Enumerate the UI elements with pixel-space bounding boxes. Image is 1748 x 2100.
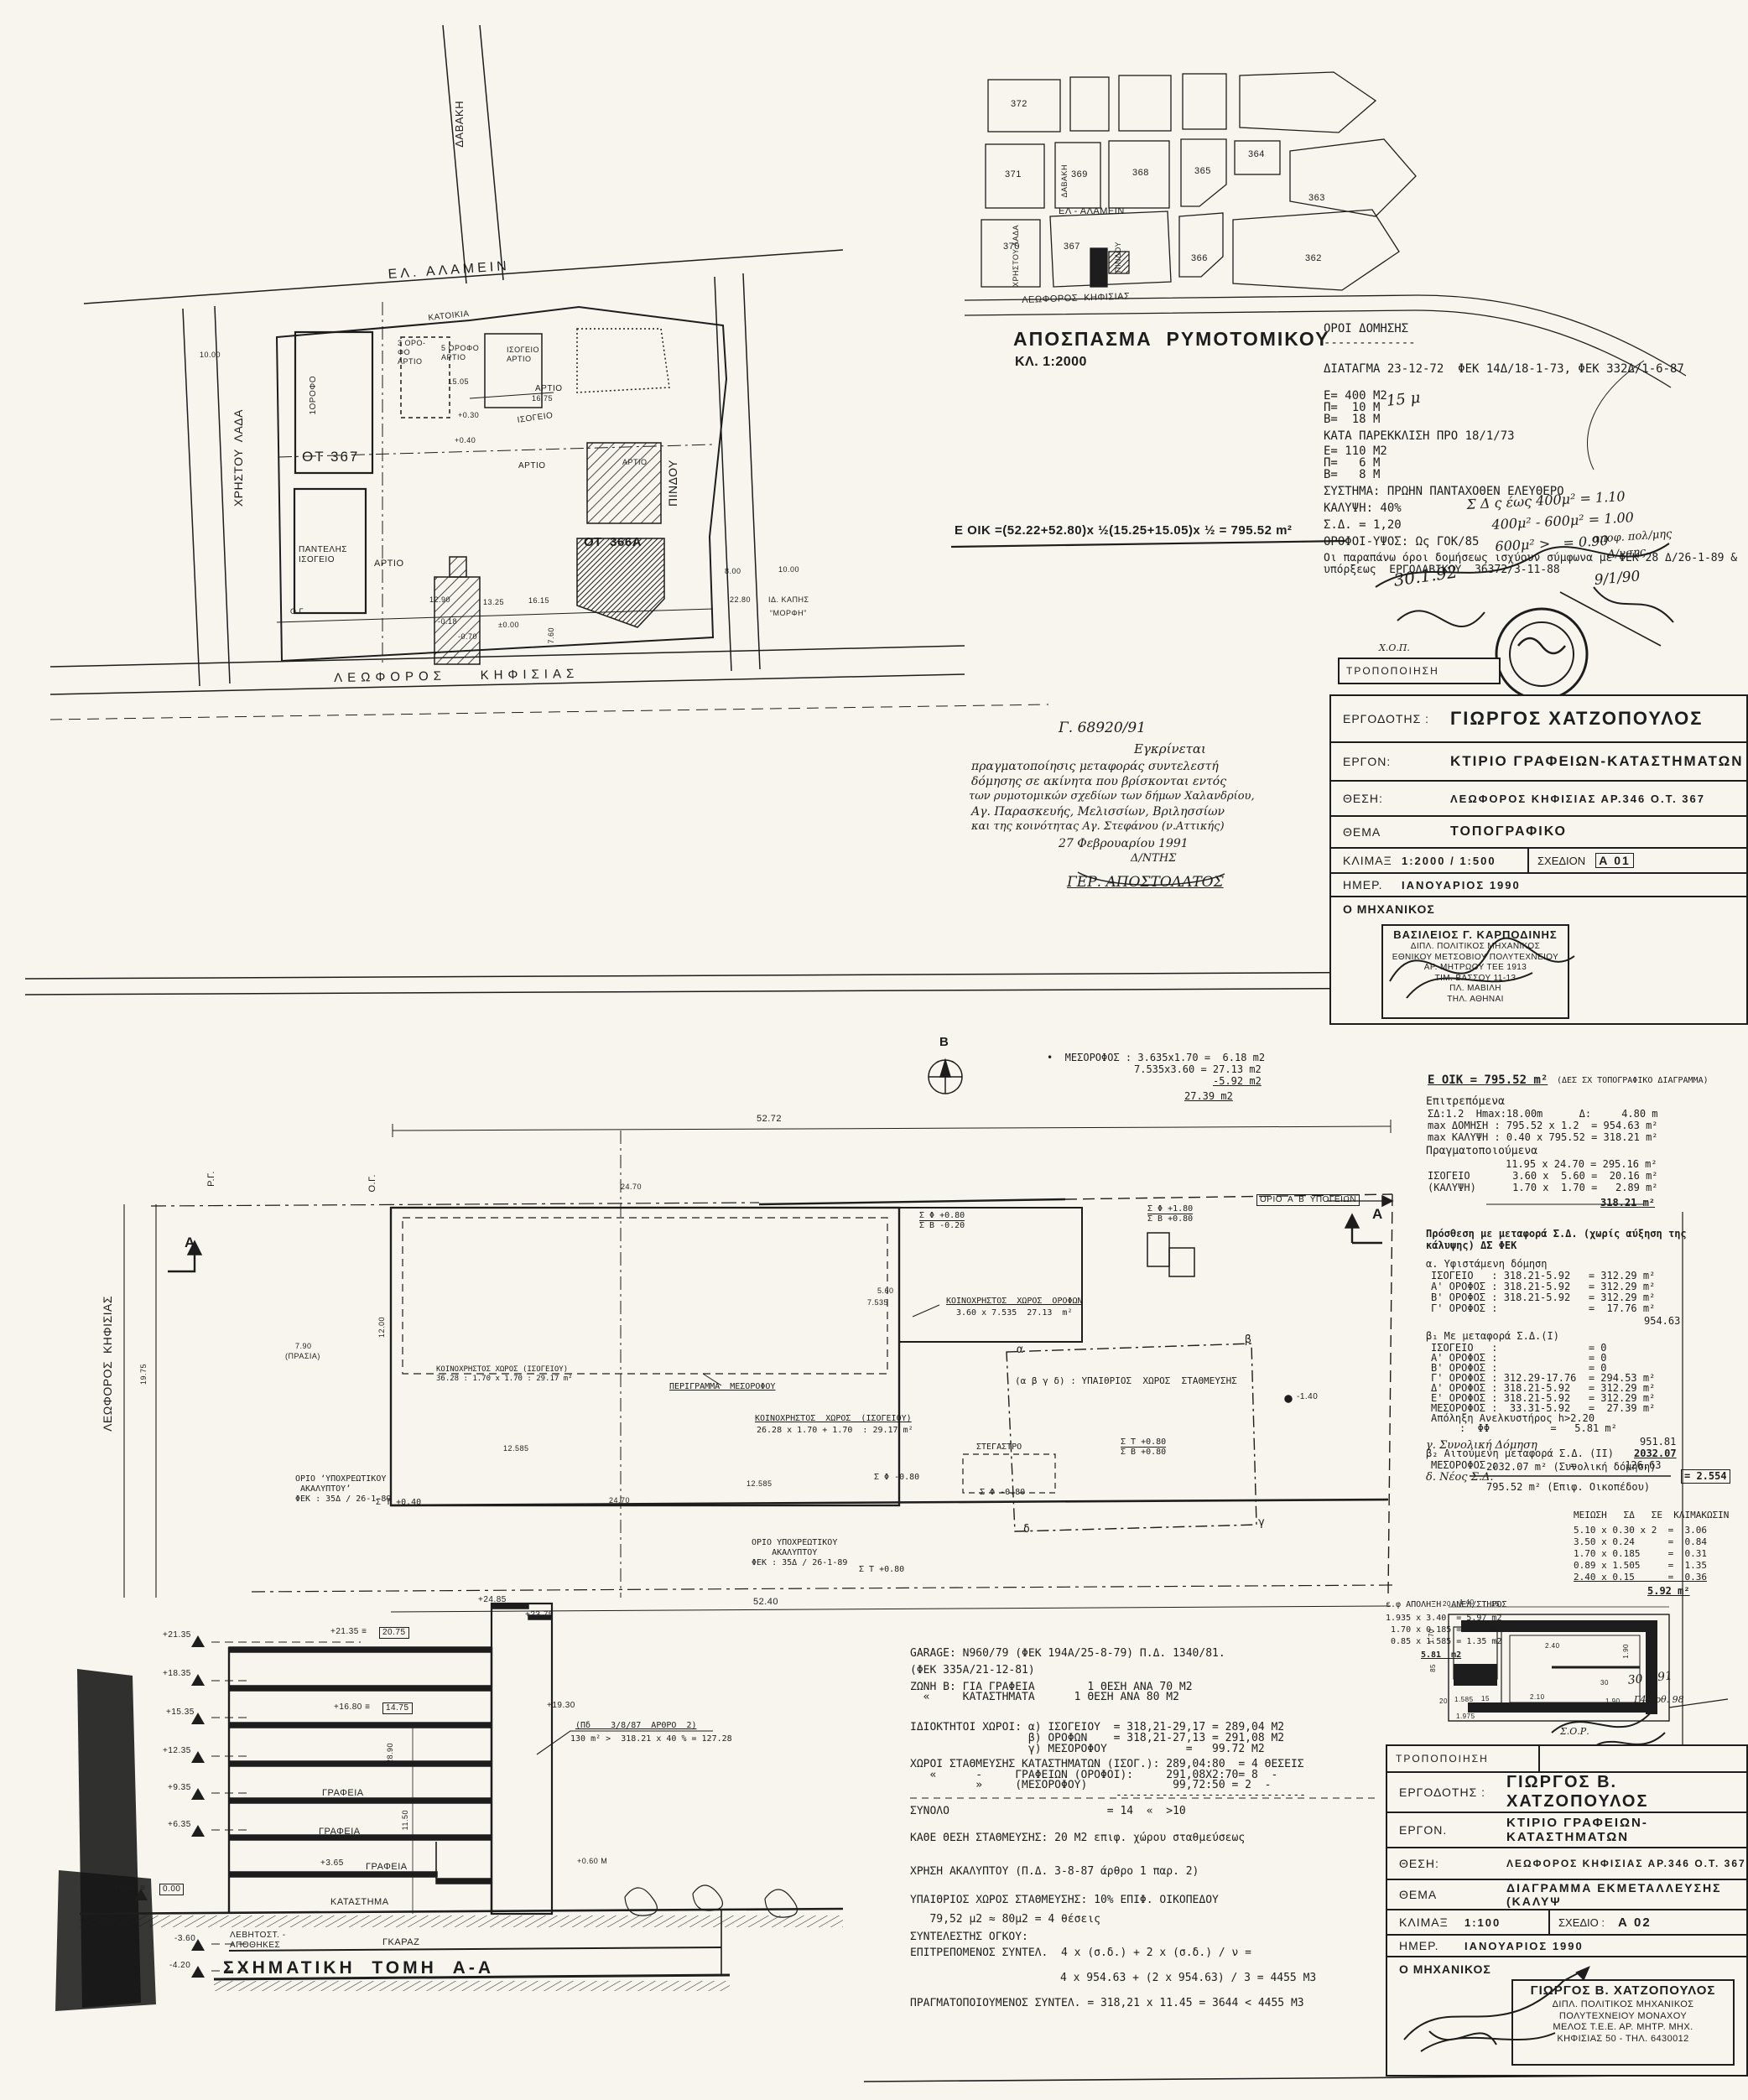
- dim: 15: [1491, 1600, 1500, 1609]
- dim: 24.70: [621, 1183, 642, 1192]
- site-calc: max ΚΑΛΥΨΗ : 0.40 x 795.52 = 318.21 m²: [1428, 1131, 1658, 1144]
- approval-note: Εγκρίνεται: [1134, 741, 1206, 756]
- site-calc: 2032.07: [1634, 1448, 1677, 1460]
- site-calc: = 2.554: [1681, 1469, 1730, 1484]
- level: +19.30: [547, 1701, 575, 1711]
- hand-note: 400μ² - 600μ² = 1.00: [1491, 509, 1634, 533]
- dim: 10.00: [778, 565, 799, 574]
- shaft-calc: 5.81 m2: [1421, 1650, 1461, 1661]
- plan-note: ΟΡΙΟ ΥΠΟΧΡΕΩΤΙΚΟΥ ΑΚΑΛΥΠΤΟΥ ΦΕΚ : 35Δ / …: [752, 1538, 847, 1569]
- section-title: ΣΧΗΜΑΤΙΚΗ ΤΟΜΗ Α-Α: [223, 1957, 494, 1979]
- hand-note: Γ4 αρθ. 98: [1634, 1694, 1684, 1705]
- modification-cell: ΤΡΟΠΟΠΟΙΗΣΗ: [1338, 658, 1501, 684]
- level-label: Σ Τ +0.40: [376, 1498, 421, 1508]
- engineer-signature: [1396, 1964, 1614, 2065]
- street-label: ΧΡΗΣΤΟΥ ΛΑΔΑ: [232, 409, 246, 507]
- level: +23.75: [525, 1610, 554, 1620]
- level: 20.75: [379, 1627, 409, 1639]
- plan-note: “ΜΟΡΦΗ”: [770, 609, 807, 618]
- reduction-table: 0.89 x 1.505 = 1.35: [1574, 1560, 1707, 1571]
- dim: 30: [1600, 1679, 1609, 1687]
- keymap-block: 369: [1071, 169, 1088, 180]
- garage-note: ΧΡΗΣΗ ΑΚΑΛΥΠΤΟΥ (Π.Δ. 3-8-87 άρθρο 1 παρ…: [910, 1865, 1199, 1879]
- level: +24.85: [478, 1595, 507, 1605]
- building-terms-line: Σ.Δ. = 1,20: [1324, 518, 1402, 533]
- site-calc: (ΔΕΣ ΣΧ ΤΟΠΟΓΡΑΦΙΚΟ ΔΙΑΓΡΑΜΜΑ): [1557, 1076, 1709, 1086]
- site-calc: δ. Νέος Σ.Δ.: [1426, 1471, 1494, 1484]
- site-calc: 795.52 m² (Επιφ. Οικοπέδου): [1486, 1481, 1650, 1494]
- keymap-block: 372: [1011, 99, 1027, 110]
- dim: 7.535: [867, 1298, 888, 1307]
- dim: -0.18: [438, 617, 457, 626]
- dim: 16.15: [528, 596, 549, 606]
- client-label: ΕΡΓΟΔΟΤΗΣ :: [1387, 1786, 1506, 1799]
- dim: -1.40: [1297, 1392, 1318, 1402]
- corner-letter: γ: [1258, 1516, 1265, 1530]
- subject-value: ΔΙΑΓΡΑΜΜΑ ΕΚΜΕΤΑΛΛΕΥΣΗΣ (ΚΑΛΥΨ: [1506, 1881, 1746, 1908]
- dim: (ΠΡΑΣΙΑ): [285, 1352, 320, 1361]
- garage-note: ΣΥΝΟΛΟ = 14 « >10: [910, 1805, 1186, 1818]
- dim: 2.10: [1530, 1693, 1545, 1702]
- dim: +0.40: [455, 436, 476, 445]
- keymap-block: 362: [1305, 253, 1322, 264]
- section-note: 130 m² > 318.21 x 40 % = 127.28: [570, 1734, 732, 1744]
- dim: 1.40: [1459, 1598, 1475, 1607]
- dim: 22.80: [730, 595, 751, 605]
- engineer-signature: [1356, 906, 1608, 1023]
- hand-note: αποφ. πολ/μης: [1592, 528, 1673, 546]
- approval-note: Δ/ΝΤΗΣ: [1131, 852, 1176, 865]
- building-terms-line: ΚΑΤΑ ΠΑΡΕΚΚΛΙΣΗ ΠΡΟ 18/1/73: [1324, 429, 1515, 444]
- room-label: ΓΡΑΦΕΙΑ: [322, 1788, 364, 1799]
- hand-note: 30 1.91: [1627, 1669, 1673, 1688]
- level: +3.65: [320, 1858, 344, 1869]
- dim: ±0.00: [498, 621, 519, 630]
- dim: 20: [1443, 1600, 1451, 1609]
- hand-note: Χ.Ο.Π.: [1379, 642, 1410, 653]
- plan-note: ΙΣΟΓΕΙΟ: [517, 411, 554, 426]
- level: +21.35: [163, 1630, 191, 1640]
- dim: +0.30: [458, 411, 479, 420]
- approval-note: 27 Φεβρουαρίου 1991: [1059, 837, 1189, 851]
- dim: 7.60: [547, 627, 556, 644]
- dim: 1.90: [1622, 1644, 1631, 1659]
- block-label: ΟΤ 367: [302, 449, 359, 466]
- date-label: ΗΜΕΡ.: [1331, 878, 1402, 891]
- keymap-block: 370: [1003, 242, 1020, 252]
- drawing-no-label: ΣΧΕΔΙΟΝ: [1537, 855, 1585, 867]
- hand-note: Σ.Ο.Ρ.: [1560, 1726, 1589, 1737]
- dim: 24.70: [609, 1496, 630, 1505]
- subject-label: ΘΕΜΑ: [1331, 825, 1450, 839]
- garage-note: « ΚΑΤΑΣΤΗΜΑΤΑ 1 ΘΕΣΗ ΑΝΑ 80 Μ2: [910, 1691, 1179, 1704]
- shaft-calc: 1.70 x 0.185 = 0.31 m2: [1386, 1625, 1501, 1635]
- keymap-street: ΧΡΗΣΤΟΥ ΛΑΔΑ: [1012, 225, 1021, 287]
- level: 0.00: [159, 1884, 184, 1895]
- dim: 1.70: [1428, 1629, 1436, 1644]
- room-label: ΓΡΑΦΕΙΑ: [319, 1827, 361, 1837]
- site-calc: 2032.07 m² (Συνολική δόμηση): [1486, 1461, 1656, 1474]
- approval-signature: ΓΕΡ. ΑΠΟΣΤΟΛΑΤΟΣ: [1067, 874, 1224, 891]
- level-label: Σ Φ -0.80: [980, 1488, 1025, 1498]
- reduction-table: 5.10 x 0.30 x 2 = 3.06: [1574, 1525, 1707, 1536]
- corner-letter: δ: [1023, 1523, 1030, 1536]
- dim: 15.05: [448, 377, 469, 387]
- plan-note: ΑΡΤΙΟ: [622, 458, 648, 467]
- hand-note: 15 μ: [1386, 389, 1421, 411]
- plan-note: ΠΕΡΙΓΡΑΜΜΑ ΜΕΣΟΡΟΦΟΥ: [669, 1382, 775, 1392]
- client-label: ΕΡΓΟΔΟΤΗΣ :: [1331, 712, 1450, 725]
- dim: 12.90: [429, 595, 450, 605]
- block-label: ΟΤ 366Α: [584, 535, 642, 550]
- dim: 12.585: [747, 1479, 773, 1489]
- drawing-no: Α 02: [1618, 1915, 1652, 1930]
- plan-note: ΑΡΤΙΟ: [374, 559, 404, 569]
- subject-label: ΘΕΜΑ: [1387, 1888, 1506, 1901]
- plan-note: ΙΔ. ΚΑΠΗΣ: [768, 595, 809, 605]
- date-value: ΙΑΝΟΥΑΡΙΟΣ 1990: [1402, 879, 1521, 891]
- dim: 13.25: [483, 598, 504, 607]
- date-value: ΙΑΝΟΥΑΡΙΟΣ 1990: [1464, 1940, 1584, 1952]
- plan-note: ΣΤΕΓΑΣΤΡΟ: [976, 1442, 1022, 1453]
- shaft-calc: 1.935 x 3.40 = 5.97 m2: [1386, 1614, 1501, 1624]
- plan-note: ΟΡΙΟ Α Β ΥΠΟΓΕΙΩΝ: [1256, 1194, 1360, 1206]
- dim: 85: [1429, 1664, 1438, 1672]
- plan-note: ΚΟΙΝΟΧΡΗΣΤΟΣ ΧΩΡΟΣ (ΙΣΟΓΕΙΟΥ): [755, 1414, 912, 1424]
- scanned-drawing-page: ΕΛ - ΑΛΑΜΕΙΝΛΕΩΦΟΡΟΣ ΚΗΦΙΣΙΑΣΧΡΗΣΤΟΥ ΛΑΔ…: [0, 0, 1748, 2100]
- plan-note: 3 ΟΡΟ- ΦΟ ΑΡΤΙΟ: [398, 339, 426, 366]
- approval-note: Γ. 68920/91: [1059, 720, 1146, 737]
- level: +12.35: [163, 1746, 191, 1756]
- plan-note: 26.28 x 1.70 + 1.70 : 29.17 m²: [757, 1426, 913, 1436]
- level-label: Σ Φ +0.80 Σ Β -0.20: [919, 1211, 965, 1231]
- garage-note: 4 x 954.63 + (2 x 954.63) / 3 = 4455 Μ3: [1060, 1972, 1316, 1985]
- hand-note: Δ/νσης: [1607, 546, 1647, 562]
- approval-note: των ρυμοτομικών σχεδίων των δήμων Χαλανδ…: [969, 790, 1255, 803]
- mezzanine-calc: • ΜΕΣΟΡΟΦΟΣ : 3.635x1.70 = 6.18 m2: [1047, 1052, 1265, 1064]
- room-label: ΓΚΑΡΑΖ: [382, 1937, 419, 1948]
- street-label: ΕΛ. ΑΛΑΜΕΙΝ: [388, 258, 510, 283]
- section-marker: Α: [1372, 1206, 1383, 1224]
- location-value: ΛΕΩΦΟΡΟΣ ΚΗΦΙΣΙΑΣ ΑΡ.346 Ο.Τ. 367: [1450, 793, 1705, 805]
- street-label: ΛΕΩΦΟΡΟΣ ΚΗΦΙΣΙΑΣ: [101, 1296, 115, 1432]
- project-value: ΚΤΙΡΙΟ ΓΡΑΦΕΙΩΝ-ΚΑΤΑΣΤΗΜΑΤΩΝ: [1450, 753, 1744, 770]
- site-calc: ΙΣΟΓΕΙΟ 3.60 x 5.60 = 20.16 m²: [1428, 1170, 1658, 1183]
- level: +0.80 ≡: [114, 1884, 145, 1894]
- garage-note: ΕΠΙΤΡΕΠΟΜΕΝΟΣ ΣΥΝΤΕΛ. 4 x (σ.δ.) + 2 x (…: [910, 1947, 1251, 1960]
- approval-note: δόμησης σε ακίνητα που βρίσκονται εντός: [971, 775, 1226, 789]
- reduction-table: 5.92 m²: [1647, 1585, 1690, 1598]
- building-terms-title: ΟΡΟΙ ΔΟΜΗΣΗΣ -------------: [1324, 322, 1416, 351]
- street-label: ΛΕΩΦΟΡΟΣ ΚΗΦΙΣΙΑΣ: [334, 667, 579, 686]
- garage-note: GARAGE: Ν960/79 (ΦΕΚ 194Α/25-8-79) Π.Δ. …: [910, 1647, 1225, 1661]
- level-label: Σ Φ +1.80 Σ Β +0.80: [1147, 1204, 1193, 1224]
- scale-label: ΚΛΙΜΑΞ: [1387, 1915, 1464, 1929]
- building-terms-line: Β= 18 Μ: [1324, 413, 1380, 427]
- room-label: ΛΕΒΗΤΟΣΤ. - ΑΠΟΘΗΚΕΣ: [230, 1931, 286, 1951]
- keymap-block: 371: [1005, 169, 1022, 180]
- north-label: Β: [939, 1035, 949, 1050]
- level: +0.60 Μ: [577, 1857, 607, 1866]
- plan-note: Ο.Γ.: [290, 607, 305, 616]
- site-calc: Ε ΟΙΚ = 795.52 m²: [1428, 1073, 1548, 1088]
- mezzanine-calc: 27.39 m2: [1184, 1090, 1233, 1103]
- plan-note: 1ΟΡΟΦΟ: [309, 376, 319, 415]
- section-note: (Πδ 3/8/87 ΑΡΘΡΟ 2): [575, 1721, 697, 1731]
- titleblock-sheet2: ΤΡΟΠΟΠΟΙΗΣΗ ΕΡΓΟΔΟΤΗΣ : ΓΙΩΡΓΟΣ Β. ΧΑΤΖΟ…: [1386, 1744, 1748, 2065]
- dim: 1.90: [1605, 1697, 1621, 1706]
- plan-note: 3.60 x 7.535 27.13 m²: [956, 1308, 1072, 1318]
- site-calc: max ΔΟΜΗΣΗ : 795.52 x 1.2 = 954.63 m²: [1428, 1120, 1658, 1132]
- building-terms-line: Β= 8 Μ: [1324, 468, 1380, 482]
- level: +21.35 ≡: [330, 1627, 367, 1637]
- plan-note: ΑΡΤΙΟ: [518, 461, 546, 471]
- location-label: ΘΕΣΗ:: [1331, 792, 1450, 805]
- dim: 1.975: [1456, 1713, 1475, 1721]
- plan-note: (α β γ δ) : ΥΠΑΙΘΡΙΟΣ ΧΩΡΟΣ ΣΤΑΘΜΕΥΣΗΣ: [1015, 1375, 1237, 1386]
- modification-label: ΤΡΟΠΟΠΟΙΗΣΗ: [1346, 665, 1439, 677]
- dim: 2.40: [1545, 1642, 1560, 1650]
- dim: 15: [1481, 1695, 1490, 1703]
- level-label: Σ Τ +0.80 Σ Β +0.80: [1121, 1437, 1166, 1458]
- hand-note: 9/1/90: [1594, 568, 1641, 589]
- drawing-no: Α 01: [1595, 853, 1634, 868]
- plan-note: ΚΑΤΟΙΚΙΑ: [428, 309, 470, 324]
- level: +6.35: [168, 1820, 191, 1830]
- dim: 10.00: [200, 351, 221, 360]
- keymap-block: 367: [1064, 242, 1080, 252]
- garage-note: ΣΥΝΤΕΛΕΣΤΗΣ ΟΓΚΟΥ:: [910, 1931, 1028, 1944]
- dim: 52.40: [753, 1597, 778, 1608]
- site-calc: 11.95 x 24.70 = 295.16 m²: [1506, 1158, 1657, 1171]
- reduction-table: 3.50 x 0.24 = 0.84: [1574, 1536, 1707, 1547]
- site-calc: 318.21 m²: [1600, 1197, 1655, 1209]
- site-calc: γ. Συνολική Δόμηση: [1426, 1439, 1537, 1453]
- site-calc: 951.81: [1640, 1436, 1676, 1448]
- client-value: ΓΙΩΡΓΟΣ ΧΑΤΖΟΠΟΥΛΟΣ: [1450, 708, 1703, 730]
- garage-note: ΠΡΑΓΜΑΤΟΠΟΙΟΥΜΕΝΟΣ ΣΥΝΤΕΛ. = 318,21 x 11…: [910, 1997, 1304, 2010]
- plan-note: ΚΟΙΝΟΧΡΗΣΤΟΣ ΧΩΡΟΣ (ΙΣΟΓΕΙΟΥ) 36.28 : 1.…: [436, 1365, 573, 1384]
- reduction-table: ΜΕΙΩΣΗ ΣΔ ΣΕ ΚΛΙΜΑΚΩΣΙΝ: [1574, 1510, 1729, 1520]
- reduction-table: 2.40 x 0.15 = 0.36: [1574, 1572, 1707, 1583]
- project-value: ΚΤΙΡΙΟ ΓΡΑΦΕΙΩΝ-ΚΑΤΑΣΤΗΜΑΤΩΝ: [1506, 1816, 1746, 1844]
- keymap-block: 365: [1194, 166, 1211, 177]
- level: +16.80 ≡: [334, 1702, 370, 1713]
- titleblock-sheet1: ΤΡΟΠΟΠΟΙΗΣΗ ΕΡΓΟΔΟΤΗΣ : ΓΙΩΡΓΟΣ ΧΑΤΖΟΠΟΥ…: [1329, 656, 1748, 976]
- keymap-block: 368: [1132, 168, 1149, 179]
- dim: 8.00: [725, 567, 741, 576]
- garage-note: γ) ΜΕΣΟΡΟΦΟΥ = 99.72 Μ2: [910, 1743, 1265, 1756]
- dim: 7.90: [295, 1342, 312, 1351]
- site-calc: (ΚΑΛΥΨΗ) 1.70 x 1.70 = 2.89 m²: [1428, 1182, 1658, 1194]
- scale-value: 1:100: [1464, 1916, 1548, 1929]
- keymap-street: ΛΕΩΦΟΡΟΣ ΚΗΦΙΣΙΑΣ: [1022, 291, 1131, 306]
- garage-note: (ΦΕΚ 335Α/21-12-81): [910, 1664, 1035, 1677]
- garage-note: -----------------------------: [1116, 1789, 1306, 1802]
- project-label: ΕΡΓΟΝ:: [1331, 755, 1450, 768]
- level: +9.35: [168, 1783, 191, 1793]
- approval-note: και της κοινότητας Αγ. Στεφάνου (ν.Αττικ…: [971, 820, 1225, 834]
- corner-letter: α: [1017, 1344, 1023, 1357]
- approval-note: Αγ. Παρασκευής, Μελισσίων, Βριλησσίων: [971, 805, 1225, 819]
- level-label: Σ Φ -0.80: [874, 1473, 919, 1483]
- site-calc: α. Υφιστάμενη δόμηση: [1426, 1258, 1548, 1271]
- dim: 19.75: [139, 1364, 148, 1385]
- dim: 5.60: [877, 1287, 894, 1296]
- dim: -0.70: [458, 632, 477, 642]
- keymap-street: ΕΛ - ΑΛΑΜΕΙΝ: [1059, 206, 1125, 217]
- scale-label: ΚΛΙΜΑΞ: [1331, 854, 1402, 867]
- plan-note: ΙΣΟΓΕΙΟ ΑΡΤΙΟ: [507, 346, 539, 364]
- reduction-table: 1.70 x 0.185 = 0.31: [1574, 1548, 1707, 1559]
- location-label: ΘΕΣΗ:: [1387, 1857, 1506, 1870]
- section-marker: Α: [185, 1235, 195, 1252]
- plot-area-formula: Ε ΟΙΚ =(52.22+52.80)x ½(15.25+15.05)x ½ …: [955, 523, 1292, 538]
- level: +18.35: [163, 1669, 191, 1679]
- dim: 52.72: [757, 1114, 782, 1125]
- site-calc: κάλυψης) ΔΣ ΦΕΚ: [1426, 1240, 1516, 1252]
- street-label: ΠΙΝΔΟΥ: [666, 460, 680, 507]
- site-calc: Πρόσθεση με μεταφορά Σ.Δ. (χωρίς αύξηση …: [1426, 1228, 1687, 1240]
- dim: 11.50: [401, 1810, 410, 1830]
- level: -3.60: [174, 1934, 195, 1944]
- keymap-block: 366: [1191, 253, 1208, 264]
- keymap-street: ΔΑΒΑΚΗ: [1060, 164, 1069, 198]
- garage-note: ΥΠΑΙΘΡΙΟΣ ΧΩΡΟΣ ΣΤΑΘΜΕΥΣΗΣ: 10% ΕΠΙΦ. ΟΙ…: [910, 1894, 1219, 1907]
- building-terms-line: ΔΙΑΤΑΓΜΑ 23-12-72 ΦΕΚ 14Δ/18-1-73, ΦΕΚ 3…: [1324, 362, 1684, 377]
- site-calc: ΣΔ:1.2 Hmax:18.00m Δ: 4.80 m: [1428, 1108, 1658, 1120]
- subject-value: ΤΟΠΟΓΡΑΦΙΚΟ: [1450, 824, 1567, 839]
- site-calc: β₁ Με μεταφορά Σ.Δ.(Ι): [1426, 1330, 1559, 1343]
- site-calc: 954.63: [1644, 1315, 1680, 1328]
- plan-note: ΠΑΝΤΕΛΗΣ ΙΣΟΓΕΙΟ: [299, 545, 347, 565]
- mezzanine-calc: 7.535x3.60 = 27.13 m2: [1134, 1063, 1262, 1076]
- project-label: ΕΡΓΟΝ.: [1387, 1823, 1506, 1837]
- dim: 20: [1439, 1697, 1448, 1706]
- dim: 12.00: [377, 1317, 387, 1338]
- street-label: ΔΑΒΑΚΗ: [453, 101, 466, 148]
- room-label: ΚΑΤΑΣΤΗΜΑ: [330, 1897, 389, 1908]
- dim: 16.75: [532, 394, 553, 403]
- room-label: ΓΡΑΦΕΙΑ: [366, 1862, 408, 1873]
- level: +15.35: [166, 1708, 195, 1718]
- site-calc: : ΦΦ = 5.81 m²: [1459, 1422, 1617, 1435]
- building-terms-line: ΟΡΟΦΟΙ-ΥΨΟΣ: Ως ΓΟΚ/85: [1324, 535, 1479, 549]
- approval-note: πραγματοποίησις μεταφοράς συντελεστή: [971, 760, 1219, 774]
- garage-note: ΚΑΘΕ ΘΕΣΗ ΣΤΑΘΜΕΥΣΗΣ: 20 Μ2 επιφ. χώρου …: [910, 1832, 1245, 1845]
- building-terms-line: ΚΑΛΥΨΗ: 40%: [1324, 502, 1402, 516]
- client-value: ΓΙΩΡΓΟΣ Β. ΧΑΤΖΟΠΟΥΛΟΣ: [1506, 1773, 1746, 1812]
- level-label: Σ Τ +0.80: [859, 1565, 904, 1575]
- location-value: ΛΕΩΦΟΡΟΣ ΚΗΦΙΣΙΑΣ ΑΡ.346 Ο.Τ. 367: [1506, 1858, 1746, 1869]
- boundary-label: Ρ.Γ.: [206, 1171, 217, 1187]
- plan-note: ΑΡΤΙΟ: [535, 384, 563, 394]
- site-calc: Πραγματοποιούμενα: [1426, 1145, 1537, 1158]
- level: 14.75: [382, 1702, 413, 1714]
- site-calc: Επιτρεπόμενα: [1426, 1095, 1505, 1109]
- boundary-label: Ο.Γ.: [367, 1174, 378, 1193]
- dim: 28.90: [386, 1743, 395, 1764]
- garage-note: 79,52 μ2 ≈ 80μ2 = 4 θέσεις: [910, 1913, 1100, 1926]
- keymap-block: 363: [1308, 193, 1325, 204]
- corner-letter: β: [1245, 1333, 1251, 1347]
- level: -4.20: [169, 1961, 190, 1971]
- scale-value: 1:2000 / 1:500: [1402, 855, 1527, 867]
- mezzanine-calc: -5.92 m2: [1213, 1075, 1262, 1088]
- drawing-no-label: ΣΧΕΔΙΟ :: [1558, 1916, 1605, 1929]
- dim: 1.585: [1454, 1696, 1474, 1704]
- map-title: ΑΠΟΣΠΑΣΜΑ ΡΥΜΟΤΟΜΙΚΟΥ: [1013, 327, 1329, 351]
- date-label: ΗΜΕΡ.: [1387, 1939, 1464, 1952]
- keymap-block: 364: [1248, 149, 1265, 160]
- map-scale: ΚΛ. 1:2000: [1015, 354, 1087, 371]
- site-calc: Γ' ΟΡΟΦΟΣ : = 17.76 m²: [1431, 1302, 1655, 1315]
- plan-note: ΚΟΙΝΟΧΡΗΣΤΟΣ ΧΩΡΟΣ ΟΡΟΦΩΝ: [946, 1297, 1083, 1307]
- modification-label: ΤΡΟΠΟΠΟΙΗΣΗ: [1387, 1746, 1540, 1771]
- dim: 12.585: [503, 1444, 529, 1453]
- plan-note: 5 ΟΡΟΦΟ ΑΡΤΙΟ: [441, 344, 479, 362]
- keymap-street: ΠΙΝΔΟΥ: [1114, 242, 1123, 273]
- shaft-calc: 0.85 x 1.585 = 1.35 m2: [1386, 1637, 1501, 1647]
